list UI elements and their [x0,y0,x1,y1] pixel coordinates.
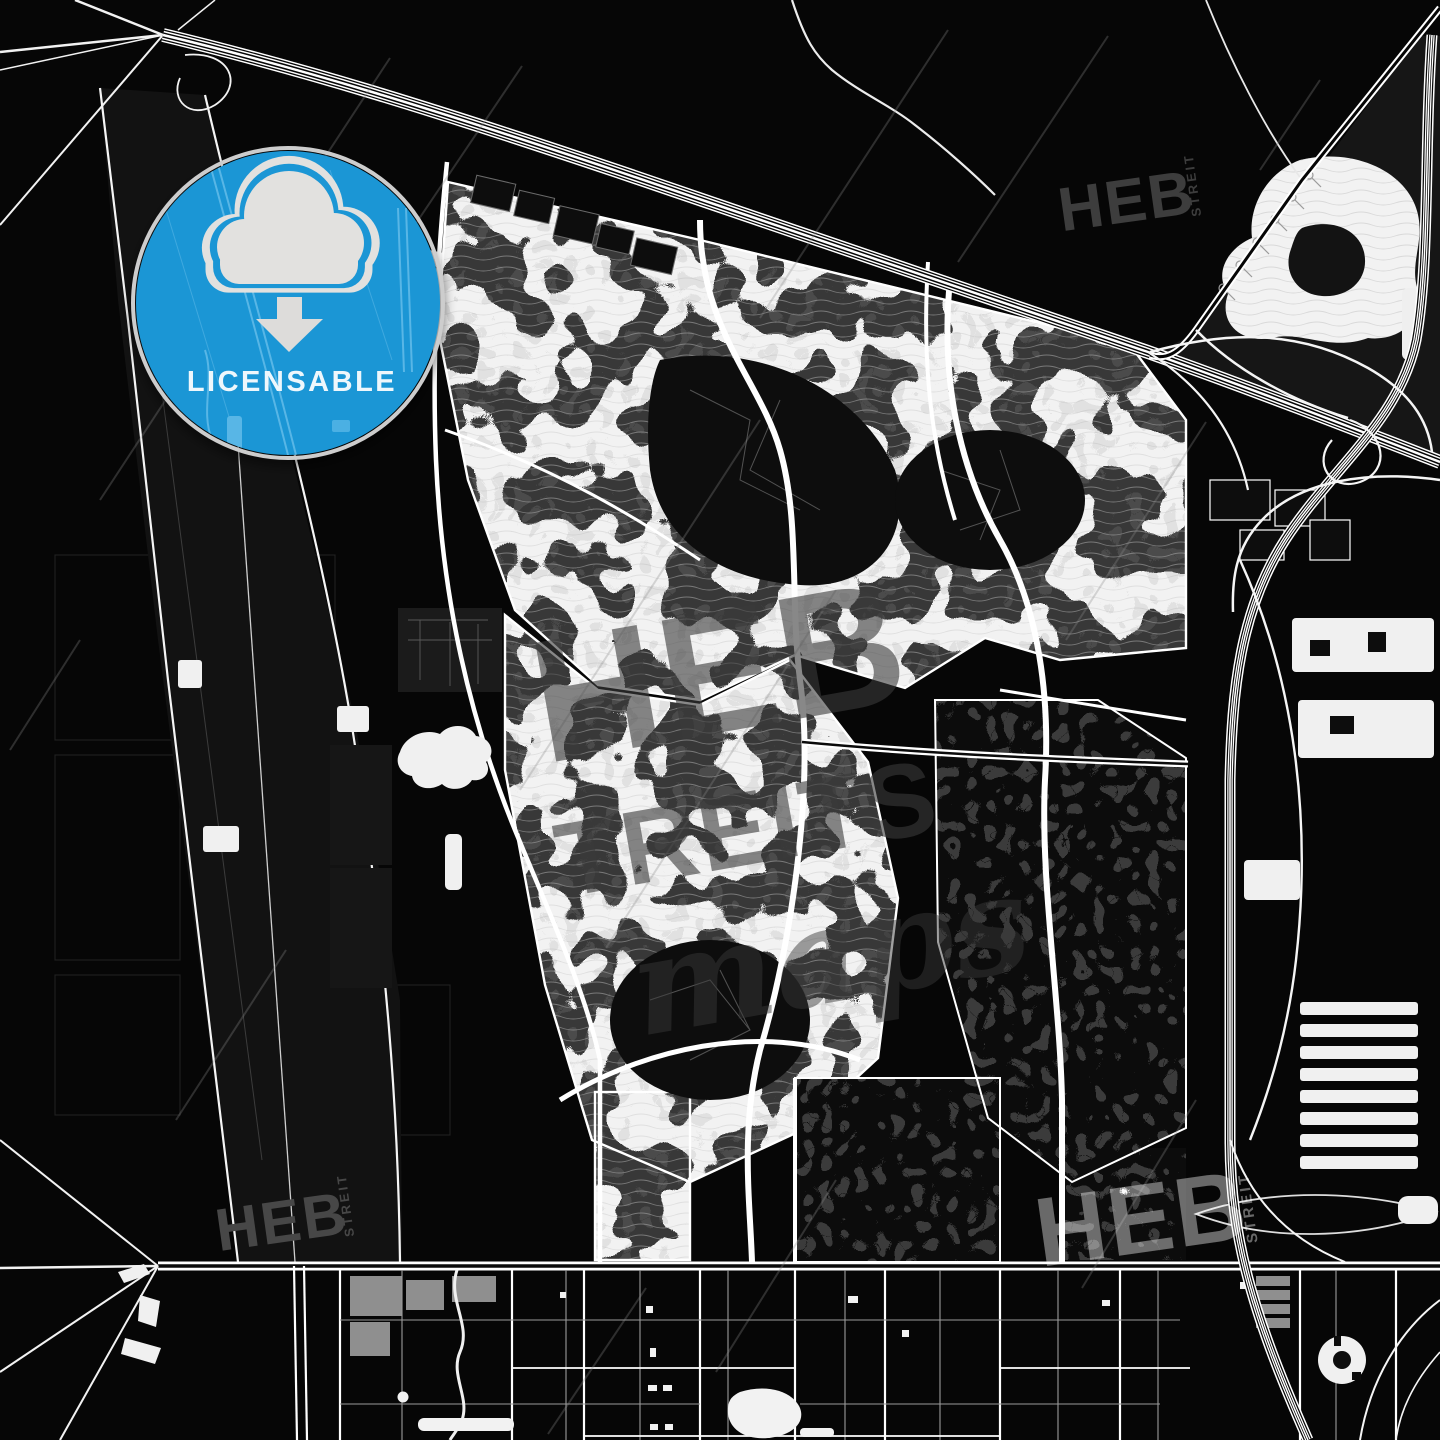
map-canvas: HEB TREITS maps HEB STREIT HEB STREIT HE… [0,0,1440,1440]
badge-label: LICENSABLE [187,366,397,398]
map-preview: HEB TREITS maps HEB STREIT HEB STREIT HE… [0,0,1440,1440]
licensable-badge[interactable]: LICENSABLE [130,148,446,467]
